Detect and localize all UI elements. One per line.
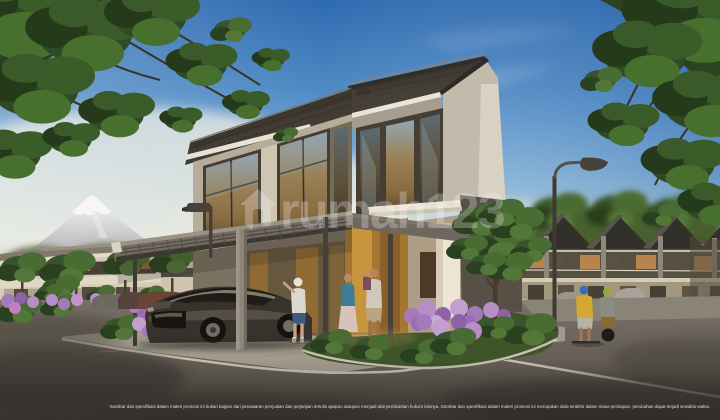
svg-text:Gambar dan spesifikasi dalam m: Gambar dan spesifikasi dalam materi prom… [110, 404, 711, 409]
svg-text:rumah123: rumah123 [280, 183, 504, 239]
